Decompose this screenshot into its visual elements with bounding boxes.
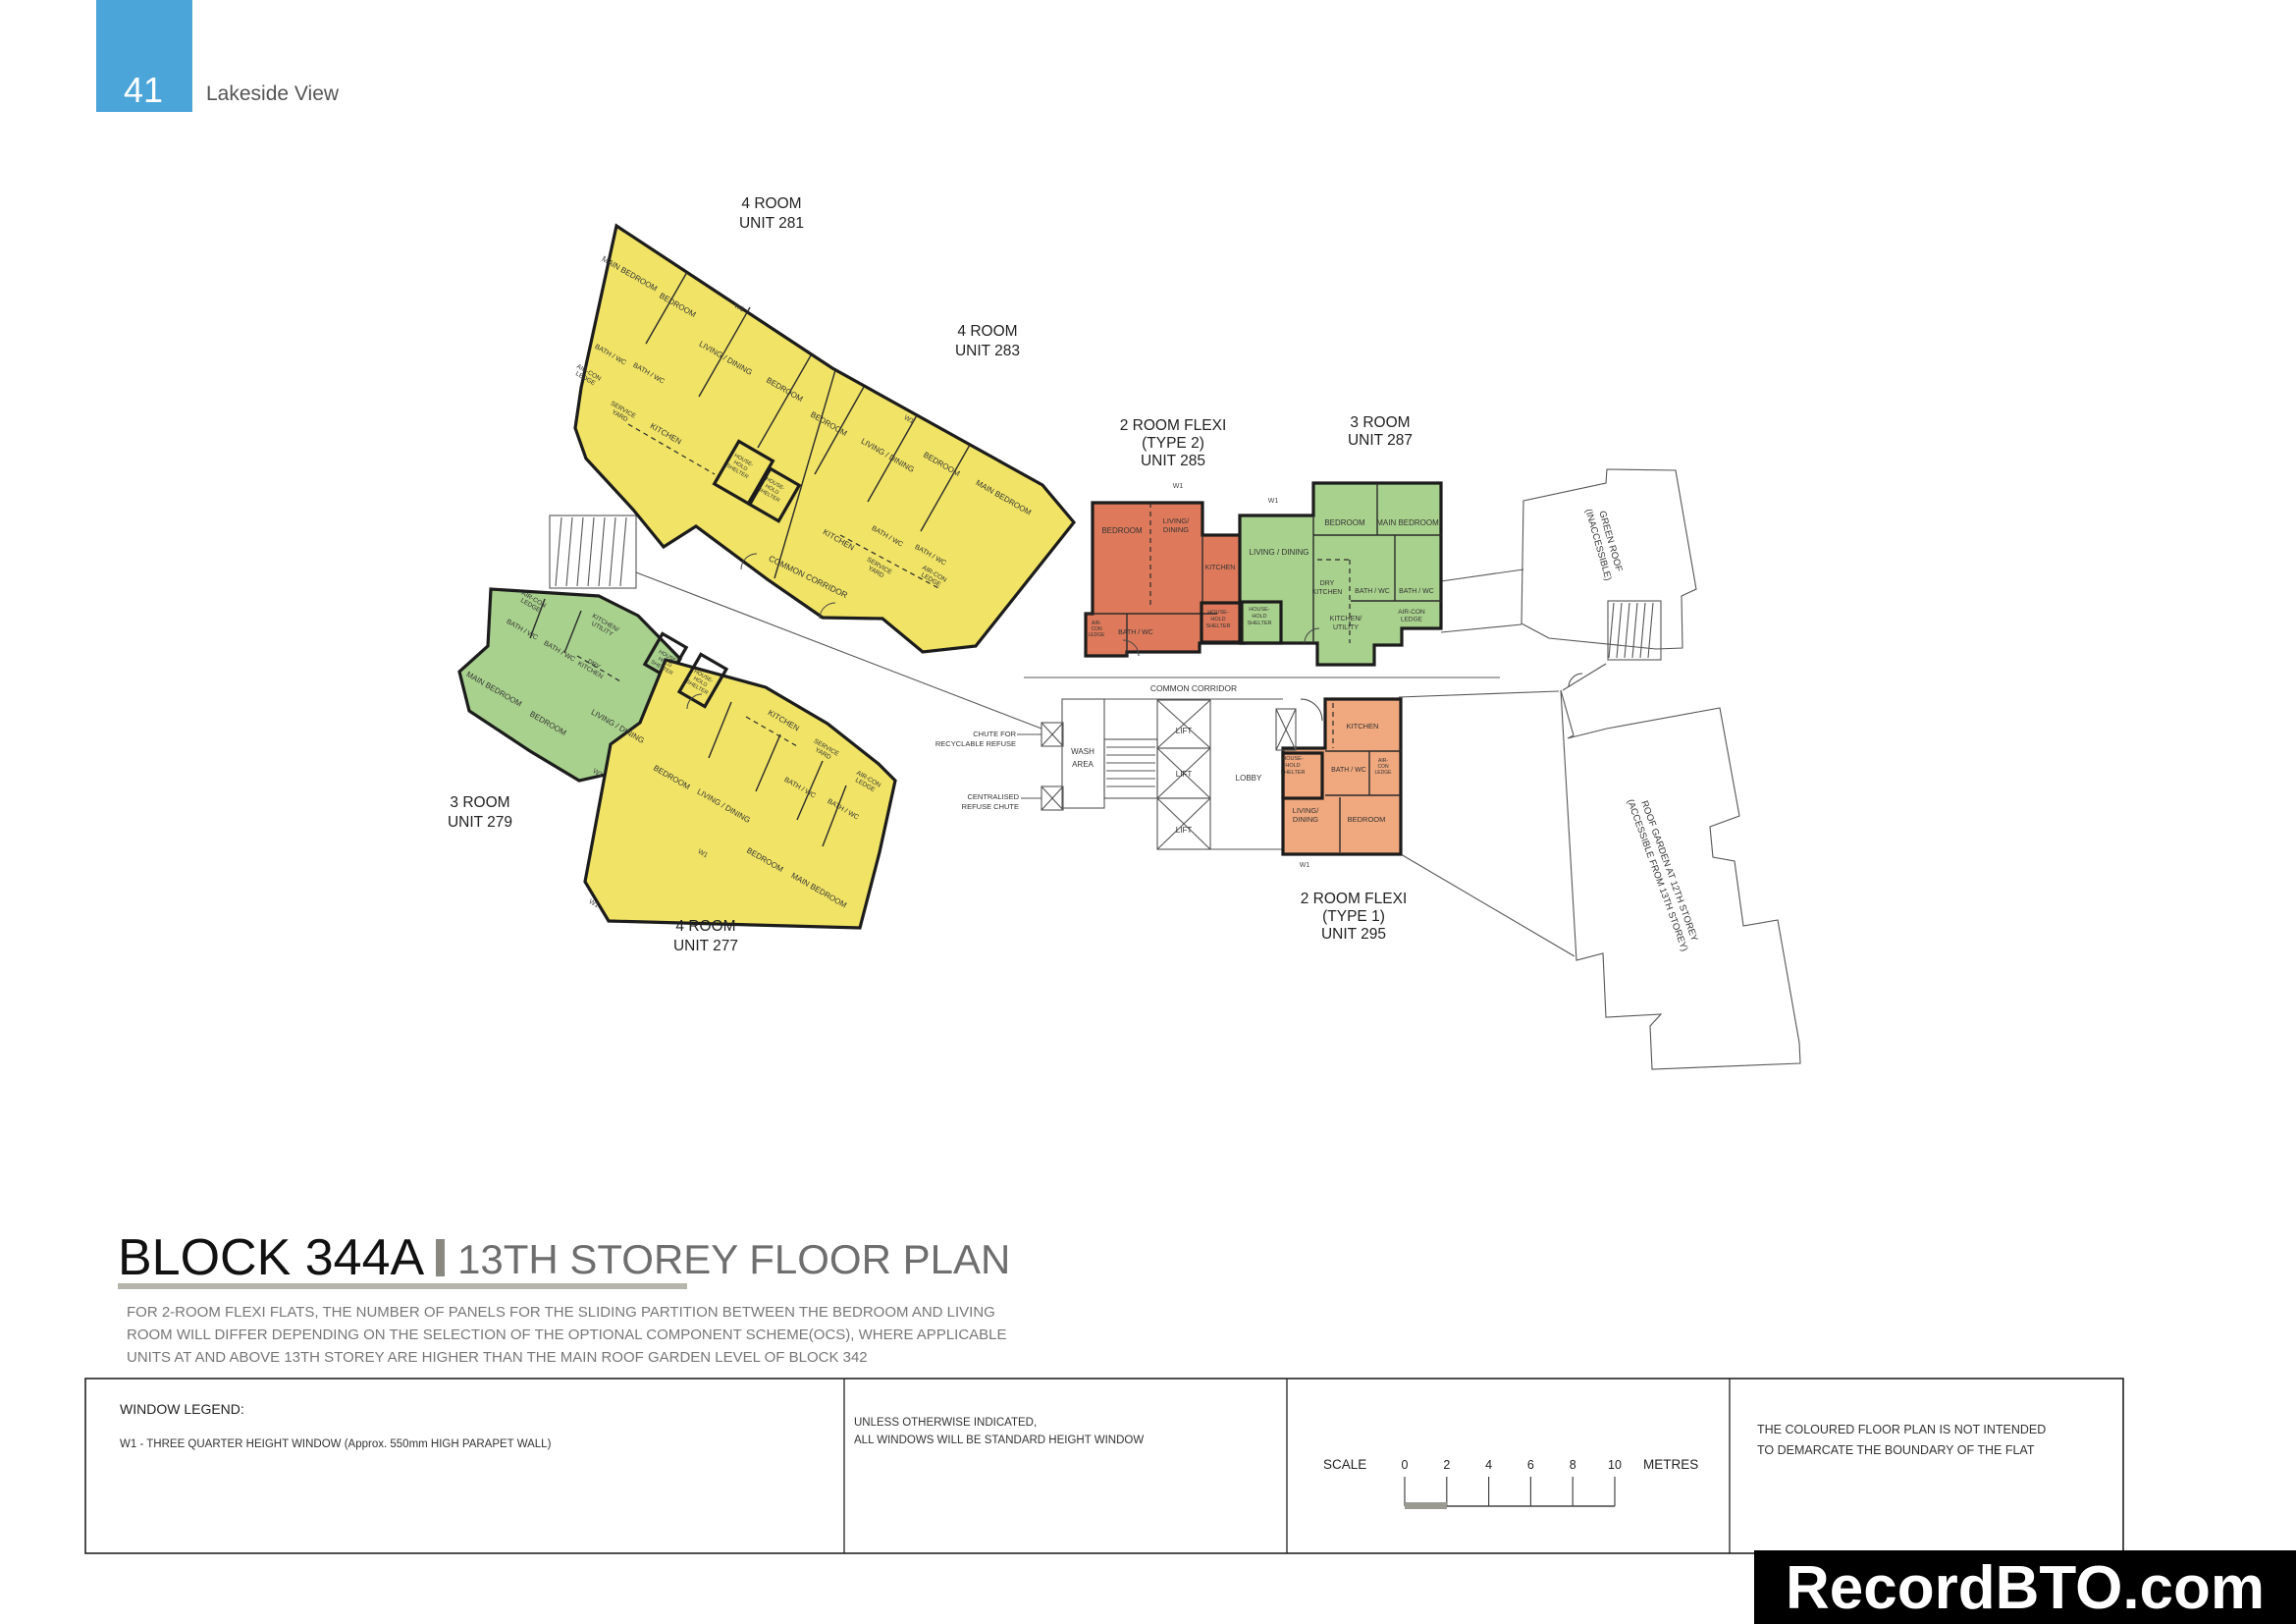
lobby-label: LOBBY — [1236, 774, 1262, 783]
floor-plan-page: 41 Lakeside View — [0, 0, 2296, 1624]
title-divider — [436, 1239, 445, 1276]
room-label: LIVING/DINING — [1293, 806, 1320, 824]
wash-area-label: WASHAREA — [1071, 747, 1095, 769]
floor-plan-canvas: 41 Lakeside View — [0, 0, 2296, 1624]
room-label: BATH / WC — [1118, 629, 1153, 636]
page-number: 41 — [124, 70, 163, 110]
refuse-chutes — [1041, 723, 1063, 810]
scale-bar: SCALE 0246810 METRES — [1323, 1457, 1698, 1509]
w1-marker: W1 — [1300, 862, 1310, 869]
unit-285-label: 2 ROOM FLEXI(TYPE 2)UNIT 285 — [1120, 417, 1227, 469]
project-name: Lakeside View — [206, 82, 340, 105]
chute-centralised-label: CENTRALISEDREFUSE CHUTE — [962, 792, 1020, 811]
disclaimer-line-2: TO DEMARCATE THE BOUNDARY OF THE FLAT — [1757, 1443, 2035, 1457]
room-label: MAIN BEDROOM — [1376, 518, 1439, 527]
room-label: BEDROOM — [1324, 518, 1365, 527]
staircase — [550, 515, 636, 588]
green-roof-label: GREEN ROOF(INACCESSIBLE) — [1582, 505, 1626, 582]
disclaimer-line-1: THE COLOURED FLOOR PLAN IS NOT INTENDED — [1757, 1423, 2046, 1436]
block-title: BLOCK 344A — [118, 1229, 424, 1286]
scale-ticks: 0246810 — [1402, 1458, 1622, 1506]
scale-tick-label: 4 — [1485, 1458, 1492, 1472]
room-label: BEDROOM — [1101, 526, 1143, 535]
room-label: LIVING / DINING — [1250, 548, 1309, 557]
room-label: AIR-CONLEDGE — [1398, 609, 1425, 623]
room-label: KITCHEN — [1205, 565, 1236, 571]
lift-label: LIFT — [1176, 770, 1193, 779]
roof-garden-outline — [1561, 690, 1800, 1069]
room-label: BEDROOM — [1348, 815, 1386, 824]
window-legend-title: WINDOW LEGEND: — [120, 1401, 244, 1417]
unit-295-outline — [1283, 699, 1401, 854]
common-corridor-label: COMMON CORRIDOR — [1150, 683, 1237, 693]
unit-277-label: 4 ROOMUNIT 277 — [673, 918, 738, 954]
central-staircase — [1104, 739, 1157, 798]
scale-tick-label: 8 — [1570, 1458, 1576, 1472]
room-label: BATH / WC — [1399, 588, 1434, 595]
note-line: FOR 2-ROOM FLEXI FLATS, THE NUMBER OF PA… — [127, 1304, 995, 1321]
unit-279-label: 3 ROOMUNIT 279 — [448, 794, 512, 831]
unit-287-label: 3 ROOMUNIT 287 — [1348, 414, 1413, 449]
w1-marker: W1 — [1173, 483, 1184, 490]
scale-tick-label: 6 — [1527, 1458, 1534, 1472]
lift-label: LIFT — [1176, 727, 1193, 735]
title-underline — [118, 1283, 687, 1289]
legend-box — [85, 1379, 2123, 1553]
room-label: BATH / WC — [1355, 588, 1390, 595]
lift-label: LIFT — [1176, 826, 1193, 835]
unit-283-label: 4 ROOMUNIT 283 — [955, 323, 1020, 359]
scale-tick-label: 2 — [1443, 1458, 1450, 1472]
scale-tick-label: 0 — [1402, 1458, 1409, 1472]
note-line: UNITS AT AND ABOVE 13TH STOREY ARE HIGHE… — [127, 1349, 868, 1366]
scale-label: SCALE — [1323, 1457, 1366, 1472]
windows-note-1: UNLESS OTHERWISE INDICATED, — [854, 1417, 1037, 1429]
unit-287-outline — [1240, 483, 1441, 665]
note-line: ROOM WILL DIFFER DEPENDING ON THE SELECT… — [127, 1326, 1007, 1343]
green-roof-staircase — [1608, 601, 1661, 660]
green-roof-outline — [1522, 469, 1696, 649]
storey-title: 13TH STOREY FLOOR PLAN — [457, 1236, 1010, 1282]
scale-unit-label: METRES — [1643, 1457, 1698, 1472]
room-label: LIVING/DINING — [1163, 516, 1191, 534]
room-label: KITCHEN — [1347, 722, 1379, 731]
roof-garden-label: ROOF GARDEN AT 12TH STOREY(ACCESSIBLE FR… — [1625, 793, 1702, 952]
scale-tick-label: 10 — [1608, 1458, 1622, 1472]
watermark-text: RecordBTO.com — [1786, 1554, 2265, 1622]
unit-295-label: 2 ROOM FLEXI(TYPE 1)UNIT 295 — [1301, 891, 1408, 943]
w1-marker: W1 — [1268, 498, 1279, 505]
windows-note-2: ALL WINDOWS WILL BE STANDARD HEIGHT WIND… — [854, 1435, 1144, 1446]
chute-recyclable-label: CHUTE FORRECYCLABLE REFUSE — [935, 730, 1017, 748]
window-legend-w1: W1 - THREE QUARTER HEIGHT WINDOW (Approx… — [120, 1438, 552, 1450]
room-label: BATH / WC — [1331, 767, 1366, 774]
unit-281-label: 4 ROOMUNIT 281 — [739, 195, 804, 232]
